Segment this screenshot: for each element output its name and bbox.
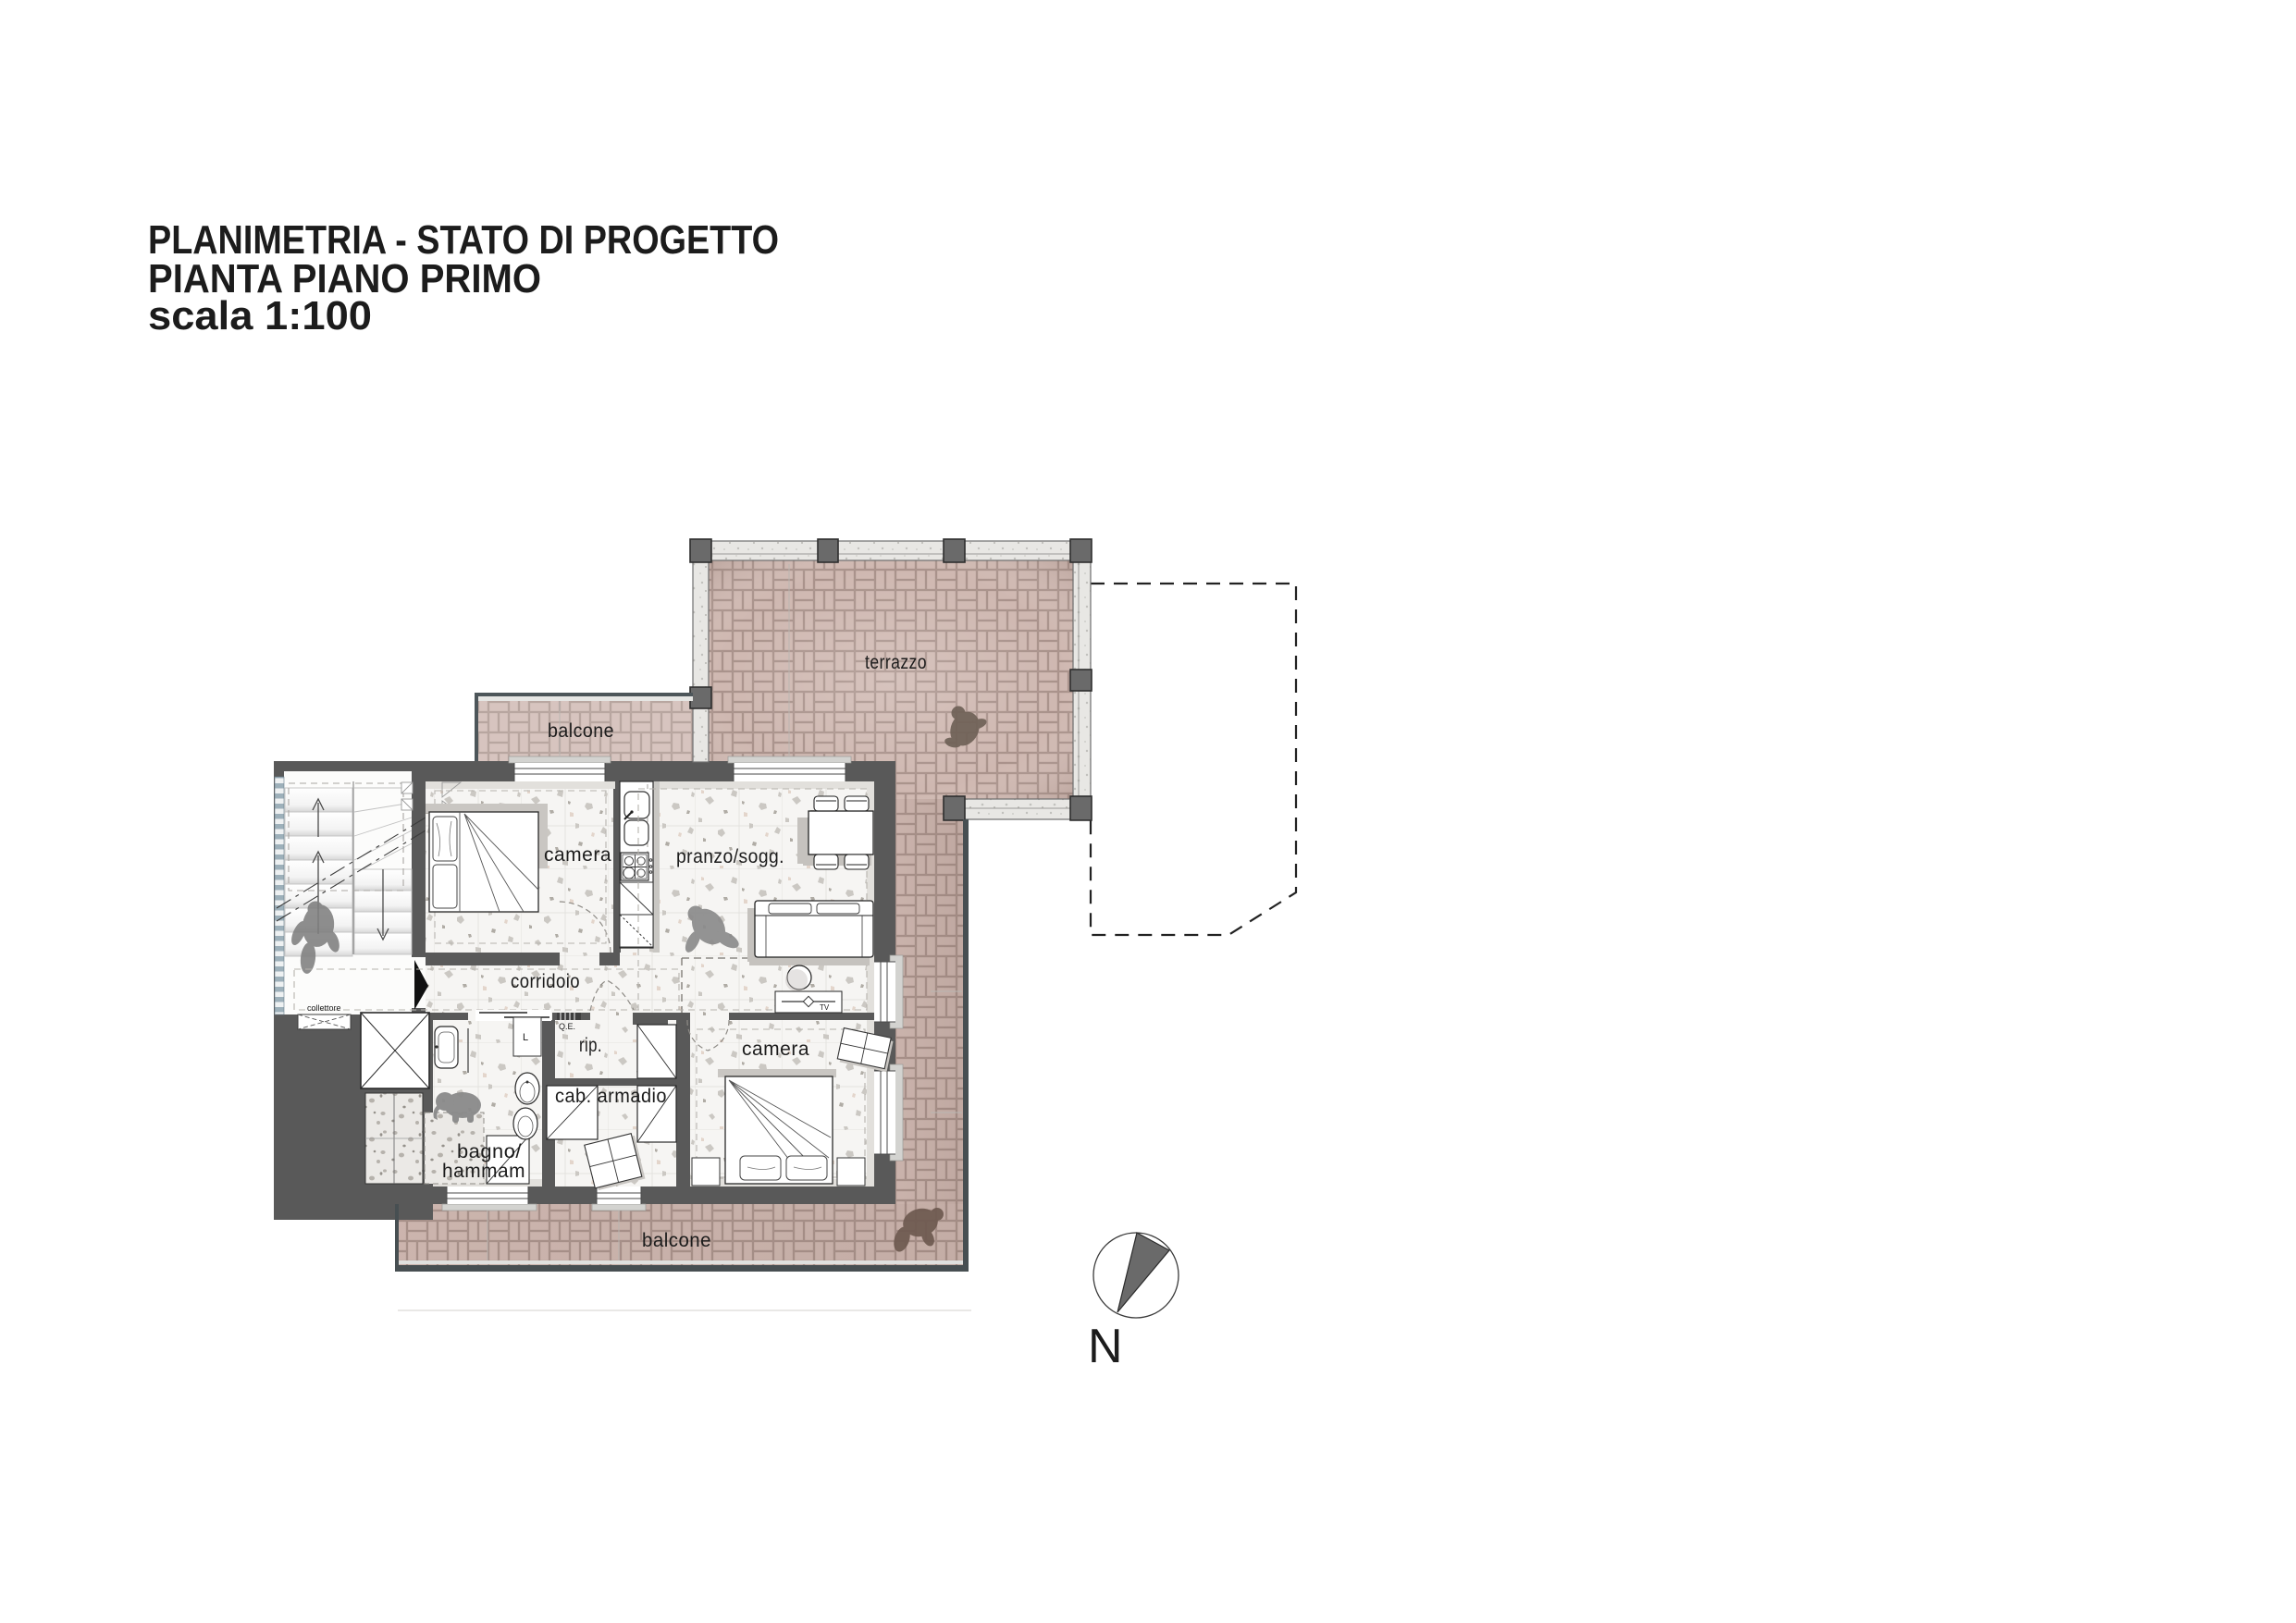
svg-text:N: N xyxy=(1088,1320,1123,1373)
svg-text:L: L xyxy=(523,1032,528,1043)
svg-text:collettore: collettore xyxy=(307,1003,341,1013)
svg-text:Q.E.: Q.E. xyxy=(559,1022,575,1031)
svg-text:hammam: hammam xyxy=(442,1161,525,1182)
svg-text:camera: camera xyxy=(742,1039,809,1060)
svg-text:bagno/: bagno/ xyxy=(457,1141,522,1162)
svg-text:rip.: rip. xyxy=(579,1035,602,1056)
svg-text:TV: TV xyxy=(820,1003,830,1012)
svg-text:pranzo/sogg.: pranzo/sogg. xyxy=(676,846,784,867)
svg-text:scala 1:100: scala 1:100 xyxy=(148,293,372,338)
svg-text:terrazzo: terrazzo xyxy=(865,652,927,673)
svg-text:camera: camera xyxy=(544,844,611,866)
svg-text:balcone: balcone xyxy=(548,720,614,742)
svg-text:corridoio: corridoio xyxy=(511,971,580,992)
svg-text:balcone: balcone xyxy=(642,1230,711,1251)
svg-text:cab. armadio: cab. armadio xyxy=(555,1086,667,1107)
